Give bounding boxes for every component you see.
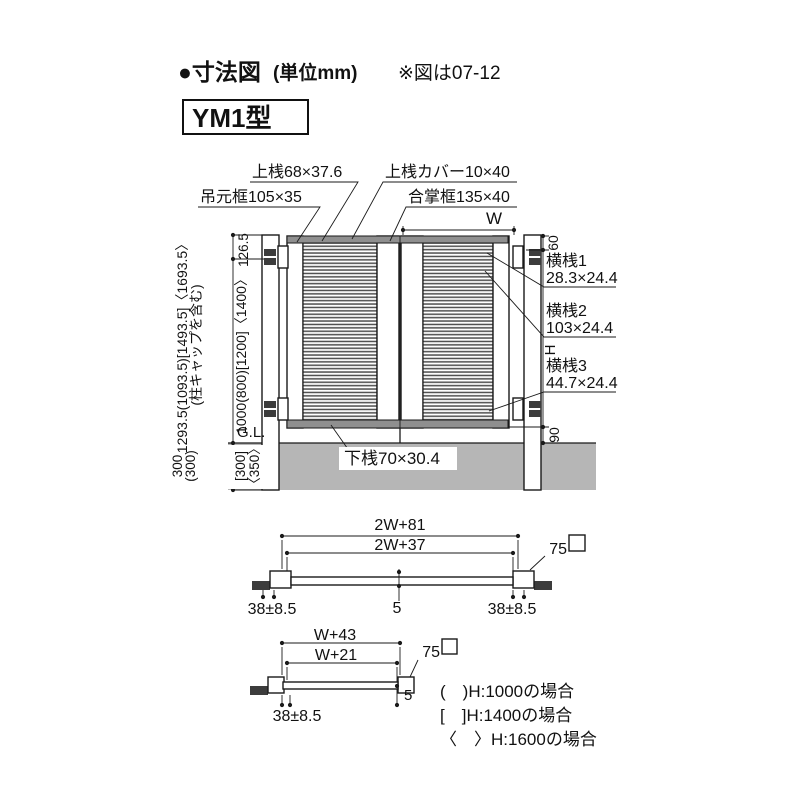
label-meeting-stile: 合掌框135×40 xyxy=(408,188,510,206)
plan-single-gate-panel xyxy=(283,682,398,689)
front-view: 上桟68×37.6 吊元框105×35 上桟カバー10×40 合掌框135×40… xyxy=(170,163,618,492)
dim-double-post-size: 75 xyxy=(549,541,567,558)
label-crossbar2-name: 横桟2 xyxy=(546,302,587,320)
page-title: ●寸法図 xyxy=(178,59,261,85)
legend-item-h1000: ( )H:1000の場合 xyxy=(440,682,574,701)
right-louver-panel xyxy=(423,243,493,421)
label-crossbar3-name: 横桟3 xyxy=(546,357,587,375)
hinge-knuckle xyxy=(278,398,288,420)
legend-item-h1400: [ ]H:1400の場合 xyxy=(440,706,572,725)
label-top-rail-cover: 上桟カバー10×40 xyxy=(385,163,510,181)
plan-hinge-hardware xyxy=(534,581,552,590)
dim-double-inner: 2W+37 xyxy=(374,537,425,554)
dim-embed-back: [300] xyxy=(233,451,248,481)
title-block: ●寸法図 (単位mm) ※図は07-12 YM1型 xyxy=(178,59,501,134)
dim-door-height: 1000(800)[1200]〈1400〉 xyxy=(233,272,249,434)
label-bottom-rail: 下桟70×30.4 xyxy=(344,449,440,468)
label-ground-line: G.L. xyxy=(237,424,265,441)
plan-hinge-hardware xyxy=(252,581,270,590)
dim-double-center-gap: 5 xyxy=(393,600,402,617)
label-crossbar2-size: 103×24.4 xyxy=(546,320,613,337)
label-top-rail: 上桟68×37.6 xyxy=(252,163,342,181)
dim-double-hinge-offset-right: 38±8.5 xyxy=(488,601,537,618)
dim-single-overall: W+43 xyxy=(314,627,356,644)
hinge-knuckle xyxy=(513,246,523,268)
dim-double-hinge-offset-left: 38±8.5 xyxy=(248,601,297,618)
right-meeting-stile xyxy=(401,236,423,428)
dim-single-hinge-offset: 38±8.5 xyxy=(273,708,322,725)
dim-height: H xyxy=(542,345,559,356)
dim-single-inner: W+21 xyxy=(315,647,357,664)
dim-single-end-gap: 5 xyxy=(404,687,412,704)
gate-doors xyxy=(287,236,509,443)
dim-embed-front-alt: (300) xyxy=(183,450,198,482)
label-crossbar1-name: 横桟1 xyxy=(546,252,587,270)
label-hinge-stile: 吊元框105×35 xyxy=(200,188,302,206)
plan-single-left-post xyxy=(268,677,284,693)
plan-right-post xyxy=(513,571,534,588)
post-square-symbol xyxy=(569,535,585,551)
top-rail-bar xyxy=(287,236,508,243)
dim-top-offset: 126.5 xyxy=(236,233,251,267)
dim-single-post-size: 75 xyxy=(422,644,440,661)
dim-double-overall: 2W+81 xyxy=(374,517,425,534)
plan-left-post xyxy=(270,571,291,588)
page-title-unit: (単位mm) xyxy=(273,61,357,84)
dimension-drawing: ●寸法図 (単位mm) ※図は07-12 YM1型 xyxy=(0,0,800,800)
legend: ( )H:1000の場合 [ ]H:1400の場合 〈 〉H:1600の場合 xyxy=(440,682,597,749)
left-hinge-stile xyxy=(287,236,303,428)
plan-hinge-hardware xyxy=(250,686,268,695)
dim-width: W xyxy=(486,209,502,228)
label-crossbar3-size: 44.7×24.4 xyxy=(546,375,618,392)
model-name: YM1型 xyxy=(192,103,271,133)
bottom-rail-bar xyxy=(287,420,508,428)
plan-view-single: W+43 W+21 38±8.5 5 75 xyxy=(250,627,457,725)
label-crossbar1-size: 28.3×24.4 xyxy=(546,270,618,287)
legend-item-h1600: 〈 〉H:1600の場合 xyxy=(440,730,597,749)
dim-top-gap: 60 xyxy=(545,235,561,251)
left-meeting-stile xyxy=(377,236,399,428)
right-post xyxy=(524,235,541,490)
left-louver-panel xyxy=(303,243,377,421)
page-note: ※図は07-12 xyxy=(398,63,501,84)
post-square-symbol xyxy=(442,639,457,654)
plan-gate-panel xyxy=(291,577,513,585)
dim-embed-back-alt: 〈350〉 xyxy=(247,441,262,491)
dim-bottom-gap: 90 xyxy=(546,427,562,443)
hinge-knuckle xyxy=(278,246,288,268)
plan-view-double: 2W+81 2W+37 38±8.5 5 38±8.5 75 xyxy=(248,517,585,618)
dim-total-height-note: (柱キャップを含む) xyxy=(188,284,204,405)
